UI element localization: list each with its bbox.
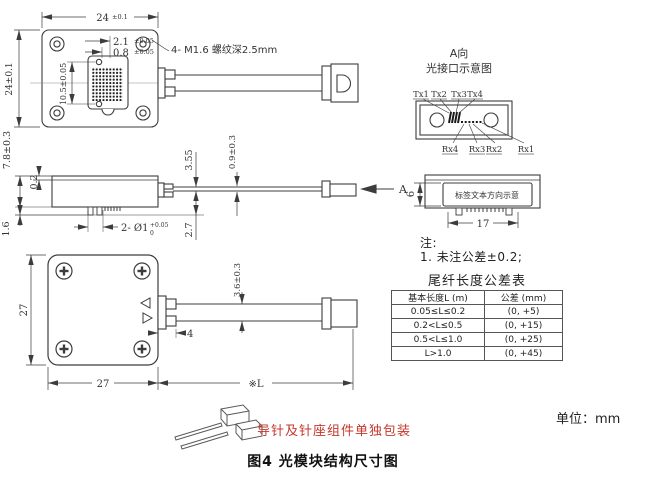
row4-length: L>1.0 [392,347,485,361]
interface-title-1: A向 [450,46,469,60]
bottom-view [26,255,357,390]
view-a-arrow [362,185,394,193]
table-row: L>1.0 (0, +45) [392,347,563,361]
dim-total-height: 7.8±0.3 [2,131,13,169]
dim-hole-span: 10.5±0.05 [59,63,68,105]
dim-label-height: 6 [406,191,417,197]
arrow-a-head [362,185,376,193]
unit-note: 单位：mm [556,408,620,427]
note-general-tolerance: 1. 未注公差±0.2; [420,248,522,265]
dim-pin-bottom: 2.7 [184,222,195,237]
dim-bottom-height: 27 [19,304,30,317]
drawing-svg: 24 ±0.1 24±0.1 2.1 ±0.05 0.8 ±0.05 10.5±… [0,0,647,479]
pin-diameter-callout: 2- Ø1 [121,223,148,234]
dim-stub: 4 [187,329,193,340]
table-header-row: 基本长度L (m) 公差 (mm) [392,291,563,305]
dim-top-width: 24 [96,13,109,24]
dim-pin-length: 1.6 [1,221,12,236]
mt-ferrule [331,64,358,102]
pin-tol-lower: 0 [150,230,154,237]
screw-thread-note: 4- M1.6 螺纹深2.5mm [171,43,277,56]
tx2-label: Tx2 [431,90,447,100]
packaging-note: 导针及针座组件单独包装 [257,420,411,439]
rx3-label: Rx3 [469,145,486,155]
interface-title-2: 光接口示意图 [426,61,492,75]
row2-length: 0.2<L≤0.5 [392,319,485,333]
table-row: 0.2<L≤0.5 (0, +15) [392,319,563,333]
pin-assembly-sketch [175,405,262,449]
figure-caption: 图4 光模块结构尺寸图 [233,451,413,471]
screw-note-leader [152,40,169,51]
dim-top-width-tol: ±0.1 [112,13,128,21]
table-header-length: 基本长度L (m) [392,291,485,305]
rx2-label: Rx2 [486,145,503,155]
side-fiber-exit [158,181,356,197]
tx1-label: Tx1 [413,90,429,100]
dim-bottom-width: 27 [97,379,110,390]
dim-boot-height: 3.55 [184,149,195,170]
row2-tolerance: (0, +15) [485,319,563,333]
pin-grid [92,67,123,101]
dim-ribbon-width: 3.6±0.3 [233,263,243,297]
ferrule-ring [322,66,331,100]
pigtail-tolerance-table: 基本长度L (m) 公差 (mm) 0.05≤L≤0.2 (0, +5) 0.2… [391,290,563,361]
tx3-label: Tx3 [451,90,467,100]
side-view [15,152,394,240]
row3-length: 0.5<L≤1.0 [392,333,485,347]
tolerance-table-title: 尾纤长度公差表 [391,270,563,289]
dim-pitch-b: 0.8 [113,48,129,59]
table-row: 0.5<L≤1.0 (0, +25) [392,333,563,347]
table-header-tolerance: 公差 (mm) [485,291,563,305]
label-view-pins [456,208,512,215]
dim-fiber-thickness: 0.9±0.3 [228,135,238,169]
row3-tolerance: (0, +25) [485,333,563,347]
dim-pigtail-length: ※L [248,379,263,390]
label-direction-text: 标签文本方向示意 [455,190,519,200]
bottom-fiber-exit [158,296,357,329]
drawing-canvas: 24 ±0.1 24±0.1 2.1 ±0.05 0.8 ±0.05 10.5±… [0,0,647,479]
dim-pitch-b-tol: ±0.05 [134,48,154,56]
dim-pitch-a: 2.1 [113,37,129,48]
mt-connector-socket [88,56,128,115]
row1-length: 0.05≤L≤0.2 [392,305,485,319]
top-fiber-exit [158,64,358,102]
guide-pins [88,207,120,215]
dim-pitch-a-tol: ±0.05 [134,37,154,45]
row4-tolerance: (0, +45) [485,347,563,361]
row1-tolerance: (0, +5) [485,305,563,319]
side-view-housing [52,176,158,207]
table-row: 0.05≤L≤0.2 (0, +5) [392,305,563,319]
rx4-label: Rx4 [442,145,459,155]
rx1-label: Rx1 [518,145,535,155]
tx4-label: Tx4 [467,90,483,100]
pin-tol-upper: +0.05 [150,222,169,229]
dim-lid-thickness: 0.2 [29,174,40,189]
dim-top-height: 24±0.1 [5,62,15,95]
dim-label-width: 17 [477,219,490,230]
